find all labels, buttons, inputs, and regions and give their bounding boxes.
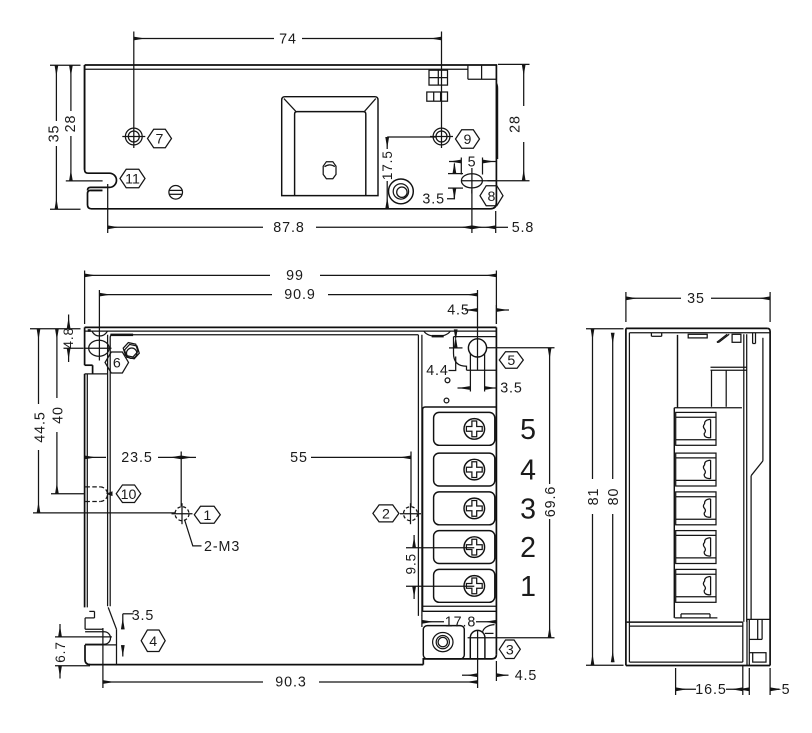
svg-text:2: 2	[382, 507, 390, 523]
svg-text:5: 5	[468, 154, 477, 170]
svg-text:40: 40	[51, 406, 67, 424]
svg-text:1: 1	[520, 571, 536, 603]
svg-text:5.8: 5.8	[512, 220, 535, 236]
svg-text:10: 10	[121, 487, 137, 503]
svg-text:55: 55	[290, 450, 308, 466]
svg-text:17.5: 17.5	[380, 150, 395, 180]
svg-text:87.8: 87.8	[273, 220, 304, 236]
svg-text:5: 5	[520, 414, 536, 446]
svg-text:80: 80	[606, 488, 622, 506]
svg-text:23.5: 23.5	[121, 450, 152, 466]
svg-text:4.5: 4.5	[447, 303, 470, 319]
svg-text:28: 28	[63, 115, 79, 133]
svg-text:90.3: 90.3	[275, 675, 306, 691]
svg-text:9: 9	[464, 132, 472, 148]
svg-text:16.5: 16.5	[695, 682, 726, 698]
svg-text:90.9: 90.9	[284, 287, 315, 303]
svg-text:2-M3: 2-M3	[204, 539, 240, 555]
svg-text:28: 28	[508, 115, 524, 133]
svg-text:35: 35	[687, 291, 705, 307]
svg-text:74: 74	[279, 31, 297, 47]
svg-text:4.8: 4.8	[61, 327, 76, 348]
svg-text:4: 4	[149, 634, 157, 650]
svg-text:9.5: 9.5	[403, 553, 418, 574]
svg-text:2: 2	[520, 532, 536, 564]
svg-text:3.5: 3.5	[500, 381, 523, 397]
svg-text:5: 5	[507, 353, 515, 369]
svg-text:81: 81	[586, 488, 602, 506]
svg-text:3.5: 3.5	[422, 191, 445, 207]
svg-text:6.7: 6.7	[53, 641, 68, 662]
svg-text:44.5: 44.5	[32, 411, 48, 442]
svg-text:4: 4	[520, 455, 536, 487]
svg-text:35: 35	[47, 125, 63, 143]
svg-text:5: 5	[782, 682, 791, 698]
svg-text:3.5: 3.5	[132, 608, 155, 624]
svg-text:3: 3	[506, 642, 514, 658]
svg-text:99: 99	[286, 268, 304, 284]
svg-text:11: 11	[125, 172, 140, 188]
svg-text:8: 8	[488, 189, 496, 205]
svg-text:3: 3	[520, 493, 536, 525]
svg-text:7: 7	[156, 132, 164, 148]
svg-text:6: 6	[113, 356, 121, 372]
svg-text:17.8: 17.8	[445, 614, 476, 630]
svg-text:4.5: 4.5	[515, 668, 538, 684]
svg-text:69.6: 69.6	[543, 486, 559, 517]
svg-text:4.4: 4.4	[426, 363, 449, 379]
svg-text:1: 1	[203, 508, 211, 524]
